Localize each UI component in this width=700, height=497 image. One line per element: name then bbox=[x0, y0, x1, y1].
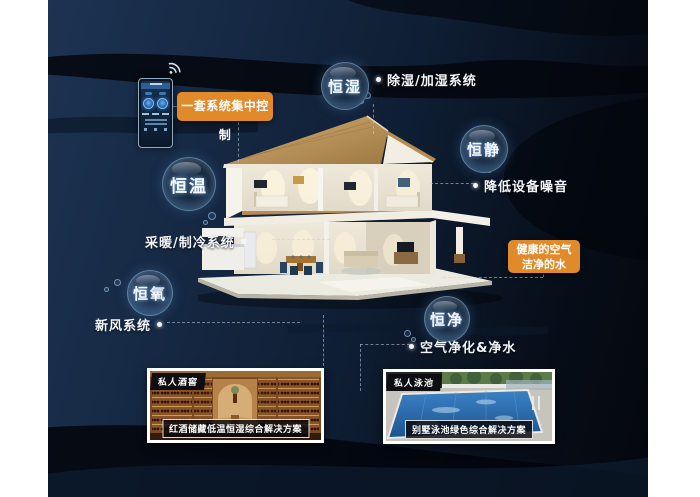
smart-home-poster: 一套系统集中控制 健康的空气 洁净的水 恒湿 恒静 恒温 恒氧 恒净 除湿/加湿… bbox=[0, 0, 700, 497]
annotation-label: 采暖/制冷系统 bbox=[145, 232, 235, 251]
bubble-constant-quiet: 恒静 bbox=[460, 125, 508, 173]
marker-dot-icon bbox=[241, 239, 246, 244]
wine-cellar-caption: 红酒储藏低温恒湿综合解决方案 bbox=[162, 419, 309, 438]
poster-canvas: 一套系统集中控制 健康的空气 洁净的水 恒湿 恒静 恒温 恒氧 恒净 除湿/加湿… bbox=[48, 0, 648, 497]
annotation-heating-cooling-system: 采暖/制冷系统 bbox=[145, 232, 246, 251]
dial-icon bbox=[157, 98, 168, 109]
wine-cellar-tag: 私人酒窖 bbox=[150, 373, 206, 390]
connector-line bbox=[238, 122, 239, 162]
central-control-label: 一套系统集中控制 bbox=[177, 92, 273, 121]
control-panel-screen bbox=[141, 81, 170, 145]
pool-caption: 别墅泳池绿色综合解决方案 bbox=[405, 420, 533, 439]
smart-home-control-panel bbox=[138, 78, 173, 148]
pool-card: 私人泳池 别墅泳池绿色综合解决方案 bbox=[383, 369, 555, 444]
screen-header bbox=[141, 83, 170, 89]
marker-dot-icon bbox=[376, 77, 381, 82]
bubble-constant-purity: 恒净 bbox=[424, 296, 470, 342]
annotation-dehumidify-humidify-system: 除湿/加湿系统 bbox=[376, 70, 477, 89]
connector-line bbox=[323, 315, 324, 366]
screen-stats bbox=[141, 113, 170, 115]
dial-icon bbox=[143, 98, 154, 109]
annotation-noise-reduction: 降低设备噪音 bbox=[473, 176, 568, 195]
screen-nav bbox=[141, 128, 170, 131]
connector-line bbox=[360, 344, 410, 345]
connector-line bbox=[443, 277, 543, 278]
bubble-constant-humidity: 恒湿 bbox=[321, 62, 369, 110]
healthy-air-line: 健康的空气 bbox=[508, 242, 580, 257]
bubble-label: 恒静 bbox=[467, 139, 501, 160]
marker-dot-icon bbox=[473, 183, 478, 188]
bubble-constant-oxygen: 恒氧 bbox=[127, 270, 173, 316]
annotation-label: 空气净化&净水 bbox=[420, 337, 516, 356]
connector-line bbox=[272, 239, 330, 240]
wine-cellar-card: 私人酒窖 红酒储藏低温恒湿综合解决方案 bbox=[147, 368, 324, 443]
bubble-label: 恒湿 bbox=[328, 76, 362, 97]
annotation-fresh-air-system: 新风系统 bbox=[95, 315, 162, 334]
healthy-air-water-label: 健康的空气 洁净的水 bbox=[508, 240, 580, 273]
mini-bubble bbox=[404, 330, 411, 337]
screen-rows bbox=[141, 119, 170, 125]
annotation-air-water-purification: 空气净化&净水 bbox=[409, 337, 516, 356]
house-cutaway-illustration bbox=[198, 106, 568, 334]
bubble-label: 恒净 bbox=[430, 309, 464, 330]
bubble-label: 恒氧 bbox=[133, 283, 167, 304]
annotation-label: 新风系统 bbox=[95, 315, 151, 334]
mini-bubble bbox=[203, 220, 208, 225]
bubble-constant-temperature: 恒温 bbox=[162, 157, 216, 211]
connector-line bbox=[430, 183, 474, 184]
marker-dot-icon bbox=[409, 344, 414, 349]
annotation-label: 降低设备噪音 bbox=[484, 176, 568, 195]
screen-toggles bbox=[141, 92, 170, 95]
pool-tag: 私人泳池 bbox=[386, 374, 442, 391]
clean-water-line: 洁净的水 bbox=[508, 257, 580, 272]
mini-bubble bbox=[208, 212, 216, 220]
bubble-label: 恒温 bbox=[170, 172, 208, 197]
annotation-label: 除湿/加湿系统 bbox=[387, 70, 477, 89]
connector-line bbox=[167, 322, 300, 323]
marker-dot-icon bbox=[157, 322, 162, 327]
house-porch bbox=[454, 227, 465, 263]
mini-bubble bbox=[114, 279, 121, 286]
house-upper-floor bbox=[226, 164, 432, 219]
connector-line bbox=[360, 344, 361, 391]
mini-bubble bbox=[104, 287, 109, 292]
connector-line bbox=[373, 104, 374, 134]
screen-dials bbox=[141, 98, 170, 109]
house-roof bbox=[223, 116, 436, 168]
